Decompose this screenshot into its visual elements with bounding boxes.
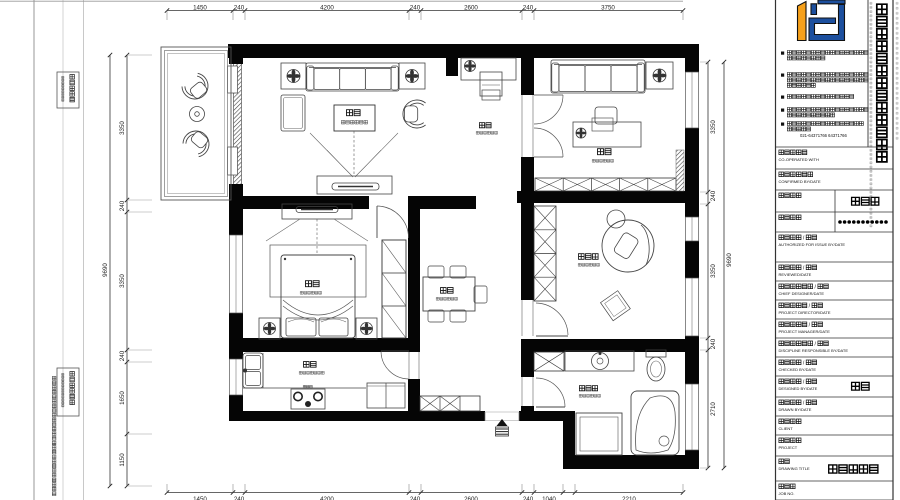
svg-text:3350: 3350 [119,274,126,288]
svg-text:DESIGNED BY/DATE: DESIGNED BY/DATE [779,386,818,391]
svg-text:1150: 1150 [119,453,126,467]
svg-text:2210: 2210 [622,496,636,500]
svg-text:2600: 2600 [464,4,478,11]
svg-text:9690: 9690 [102,263,109,277]
svg-text:/: / [803,380,805,386]
svg-text:/: / [814,285,816,291]
svg-text:/: / [803,236,805,242]
svg-text:/: / [809,323,811,329]
svg-text:240: 240 [119,350,126,361]
svg-text:CONFIRMED BY/DATE: CONFIRMED BY/DATE [779,179,821,184]
svg-text:PROJECT DIRECTOR/DATE: PROJECT DIRECTOR/DATE [779,310,831,315]
svg-text:DISCIPLINE RESPONSIBLE BY/DATE: DISCIPLINE RESPONSIBLE BY/DATE [779,348,849,353]
svg-text:CO-OPERATED WITH: CO-OPERATED WITH [779,157,819,162]
svg-text:1040: 1040 [542,496,556,500]
svg-text:/: / [814,342,816,348]
svg-text:240: 240 [523,4,534,11]
svg-text:DRAWING TITLE: DRAWING TITLE [779,466,810,471]
svg-text:/: / [809,304,811,310]
svg-text:3350: 3350 [119,121,126,135]
svg-text:240: 240 [710,338,717,349]
svg-text:REVIEWED/DATE: REVIEWED/DATE [779,272,812,277]
svg-text:3350: 3350 [710,120,717,134]
svg-text:4200: 4200 [320,496,334,500]
svg-text:PROJECT: PROJECT [779,445,798,450]
svg-text:240: 240 [410,496,421,500]
svg-text:DRAWN BY/DATE: DRAWN BY/DATE [779,407,812,412]
svg-text:3350: 3350 [710,264,717,278]
svg-text:/: / [803,361,805,367]
svg-text:AUTHORIZED FOR ISSUE BY/DATE: AUTHORIZED FOR ISSUE BY/DATE [779,242,846,247]
svg-text:240: 240 [234,496,245,500]
svg-text:1450: 1450 [193,496,207,500]
svg-text:1450: 1450 [193,4,207,11]
svg-text:240: 240 [523,496,534,500]
svg-text:/: / [803,266,805,272]
svg-text:240: 240 [410,4,421,11]
svg-text:9690: 9690 [726,253,733,267]
svg-text:4200: 4200 [320,4,334,11]
svg-text:PROJECT MANAGER/DATE: PROJECT MANAGER/DATE [779,329,831,334]
svg-text:JOB NO.: JOB NO. [779,491,795,496]
svg-text:2710: 2710 [710,402,717,416]
svg-text:3750: 3750 [601,4,615,11]
svg-text:1650: 1650 [119,391,126,405]
svg-text:2600: 2600 [464,496,478,500]
svg-text:021-64371766 64371766: 021-64371766 64371766 [800,133,847,138]
svg-text:CHIEF DESIGNER/DATE: CHIEF DESIGNER/DATE [779,291,825,296]
svg-text:CLIENT: CLIENT [779,426,794,431]
svg-text:/: / [803,401,805,407]
svg-text:240: 240 [710,190,717,201]
svg-text:CHECKED BY/DATE: CHECKED BY/DATE [779,367,817,372]
svg-text:240: 240 [119,200,126,211]
svg-text:240: 240 [234,4,245,11]
